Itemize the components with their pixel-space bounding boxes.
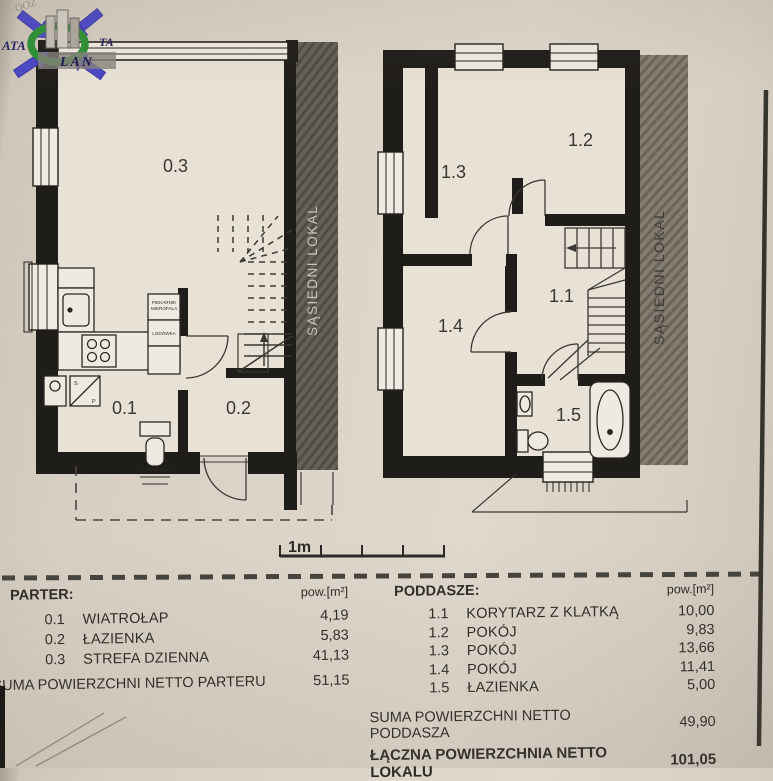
table-row: 0.3 STREFA DZIENNA 41,13 xyxy=(45,646,349,671)
room-area: 5,83 xyxy=(277,628,349,645)
total-value: 49,90 xyxy=(644,713,716,730)
oven-label-line1: PIEKARNIK xyxy=(152,300,177,305)
room-label-1-3: 1.3 xyxy=(441,162,466,182)
room-area: 9,83 xyxy=(642,622,714,639)
room-name: POKÓJ xyxy=(467,660,643,678)
plan-parter: SĄSIEDNI LOKAL xyxy=(24,40,338,520)
room-name: KORYTARZ Z KLATKĄ xyxy=(466,604,642,622)
room-area: 41,13 xyxy=(277,648,349,665)
table-poddasze-title: PODDASZE: xyxy=(394,583,480,600)
grand-total-value: 101,05 xyxy=(644,751,716,769)
room-label-1-5: 1.5 xyxy=(556,405,581,425)
room-number: 0.1 xyxy=(44,612,82,629)
room-label-1-4: 1.4 xyxy=(438,316,463,336)
table-parter: PARTER: pow.[m²] 0.1 WIATROŁAP 4,19 0.2 … xyxy=(0,582,360,694)
room-number: 1.1 xyxy=(428,606,466,622)
washer-letter-bottom: P xyxy=(92,399,96,405)
room-number: 0.2 xyxy=(45,632,83,649)
agency-logo: OOZ ATA TA LAN xyxy=(0,0,132,80)
total-value: 51,15 xyxy=(277,673,349,690)
room-name: POKÓJ xyxy=(467,641,643,659)
scale-bar-label: 1m xyxy=(288,539,311,556)
photo-edge-strip xyxy=(0,686,5,768)
table-row: 1.5 ŁAZIENKA 5,00 xyxy=(429,676,715,698)
room-name: ŁAZIENKA xyxy=(467,678,643,696)
parter-neighbor-label: SĄSIEDNI LOKAL xyxy=(305,205,320,336)
poddasze-neighbor-label: SĄSIEDNI LOKAL xyxy=(651,210,667,345)
table-poddasze: PODDASZE: pow.[m²] 1.1 KORYTARZ Z KLATKĄ… xyxy=(380,580,734,781)
room-label-0-1: 0.1 xyxy=(112,398,137,418)
table-parter-unit-header: pow.[m²] xyxy=(301,585,348,600)
washer-letter-top: S xyxy=(74,381,78,387)
oven-label-line2: MIKROFALA xyxy=(151,306,178,311)
plan-poddasze: SĄSIEDNI LOKAL xyxy=(378,44,688,512)
logo-text-right: TA xyxy=(99,35,114,49)
fridge-label: LODÓWKA xyxy=(152,330,176,336)
room-name: POKÓJ xyxy=(467,623,643,641)
room-number: 1.5 xyxy=(429,680,467,696)
table-poddasze-unit-header: pow.[m²] xyxy=(667,582,714,597)
room-label-1-1: 1.1 xyxy=(549,286,574,306)
table-poddasze-header: PODDASZE: pow.[m²] xyxy=(380,580,732,600)
room-number: 1.3 xyxy=(429,643,467,659)
room-label-1-2: 1.2 xyxy=(568,130,593,150)
room-name: STREFA DZIENNA xyxy=(83,649,277,668)
grand-total-label: ŁĄCZNA POWIERZCHNIA NETTO LOKALU xyxy=(370,743,644,780)
table-poddasze-total: SUMA POWIERZCHNI NETTO PODDASZA 49,90 xyxy=(382,705,734,741)
room-area: 11,41 xyxy=(643,659,715,676)
room-area: 13,66 xyxy=(643,640,715,657)
room-area: 10,00 xyxy=(642,603,714,620)
table-poddasze-rows: 1.1 KORYTARZ Z KLATKĄ 10,00 1.2 POKÓJ 9,… xyxy=(380,602,733,699)
room-name: WIATROŁAP xyxy=(82,609,276,628)
room-label-0-3: 0.3 xyxy=(163,156,188,176)
room-area: 4,19 xyxy=(276,608,348,625)
room-number: 0.3 xyxy=(45,652,83,669)
scale-bar: 1m xyxy=(280,539,445,557)
table-parter-rows: 0.1 WIATROŁAP 4,19 0.2 ŁAZIENKA 5,83 0.3… xyxy=(0,605,359,671)
total-label: SUMA POWIERZCHNI NETTO PODDASZA xyxy=(370,706,644,741)
room-number: 1.2 xyxy=(429,625,467,641)
room-label-0-2: 0.2 xyxy=(226,398,251,418)
logo-buildings xyxy=(46,10,79,48)
dashed-separator xyxy=(2,574,770,578)
room-area: 5,00 xyxy=(643,677,715,694)
table-grand-total: ŁĄCZNA POWIERZCHNIA NETTO LOKALU 101,05 xyxy=(382,742,734,780)
room-number: 1.4 xyxy=(429,662,467,678)
table-parter-title: PARTER: xyxy=(10,587,74,604)
parter-band-foot xyxy=(301,472,333,505)
room-name: ŁAZIENKA xyxy=(83,629,277,648)
logo-text-bottom: LAN xyxy=(59,55,94,70)
logo-text-left: ATA xyxy=(1,38,26,53)
